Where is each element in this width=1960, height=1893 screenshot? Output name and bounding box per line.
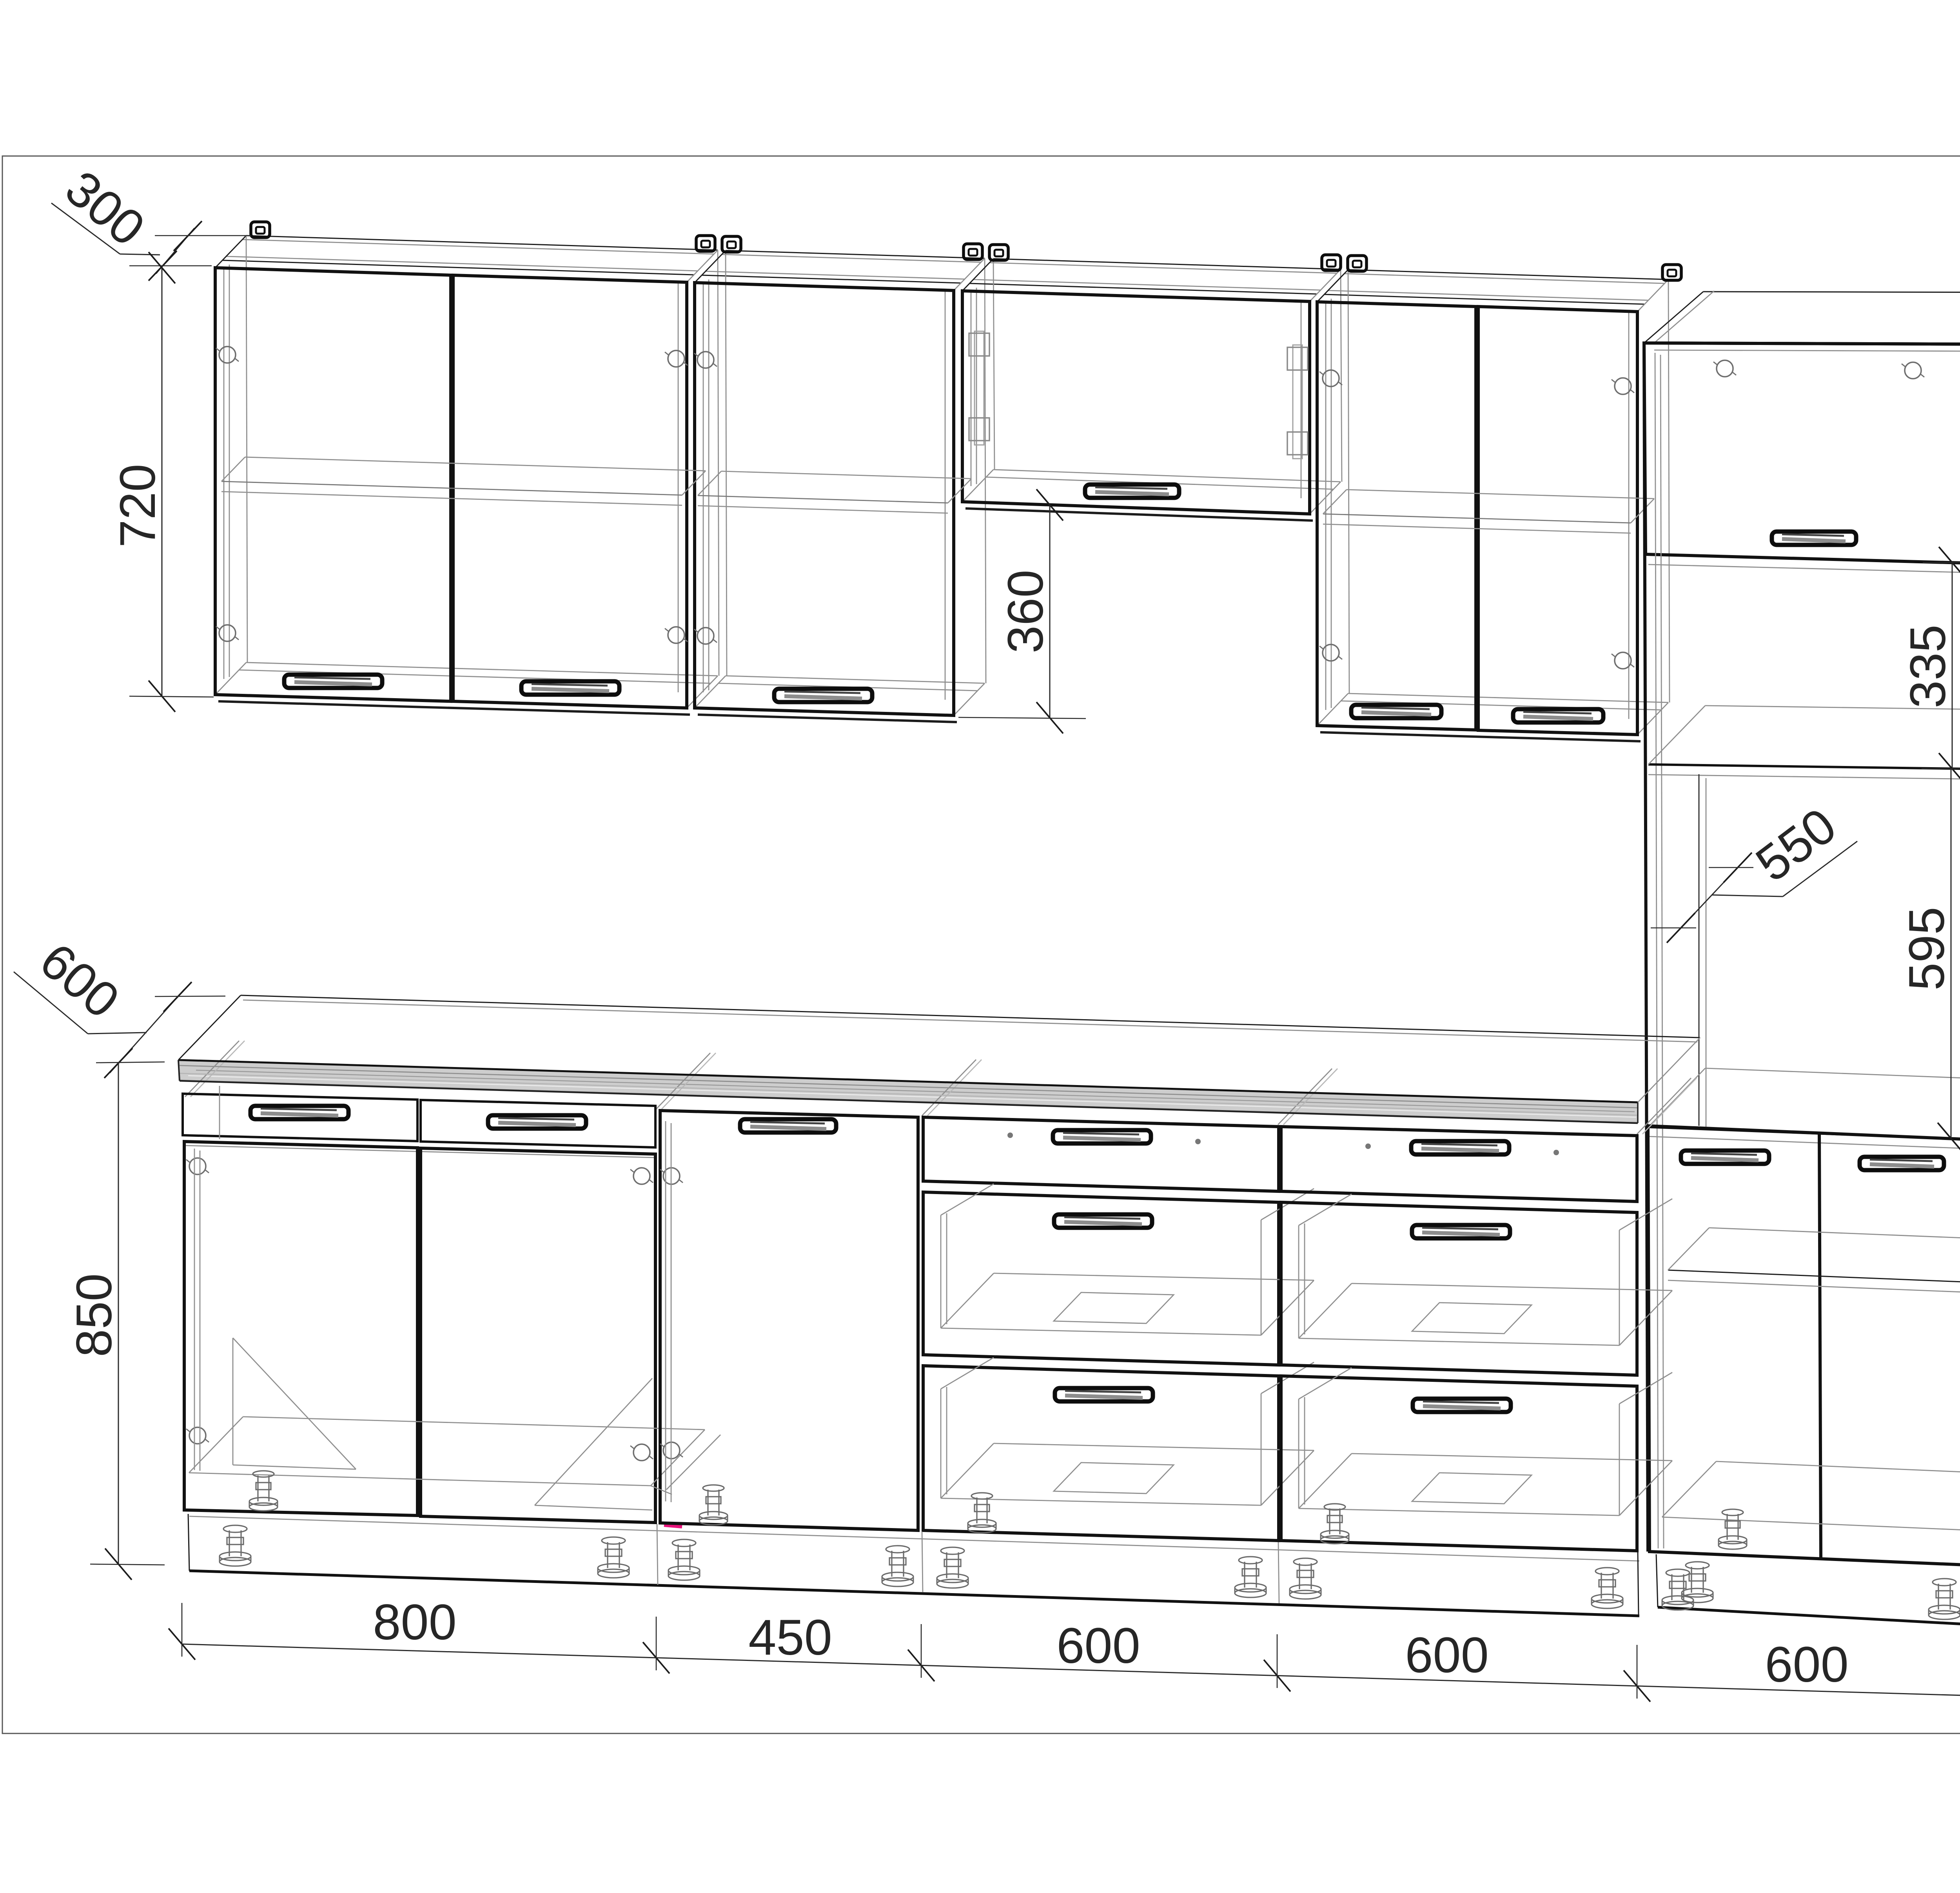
svg-text:335: 335 bbox=[1900, 624, 1956, 708]
svg-text:600: 600 bbox=[1056, 1618, 1140, 1674]
svg-text:360: 360 bbox=[998, 570, 1054, 653]
svg-text:450: 450 bbox=[748, 1610, 832, 1666]
svg-text:600: 600 bbox=[29, 932, 130, 1029]
svg-text:550: 550 bbox=[1746, 797, 1847, 893]
svg-text:600: 600 bbox=[1765, 1637, 1849, 1693]
svg-text:720: 720 bbox=[110, 464, 166, 548]
svg-text:595: 595 bbox=[1899, 907, 1955, 991]
svg-text:300: 300 bbox=[55, 160, 155, 257]
svg-text:800: 800 bbox=[373, 1594, 457, 1650]
svg-text:600: 600 bbox=[1405, 1627, 1489, 1683]
svg-text:850: 850 bbox=[66, 1273, 122, 1357]
